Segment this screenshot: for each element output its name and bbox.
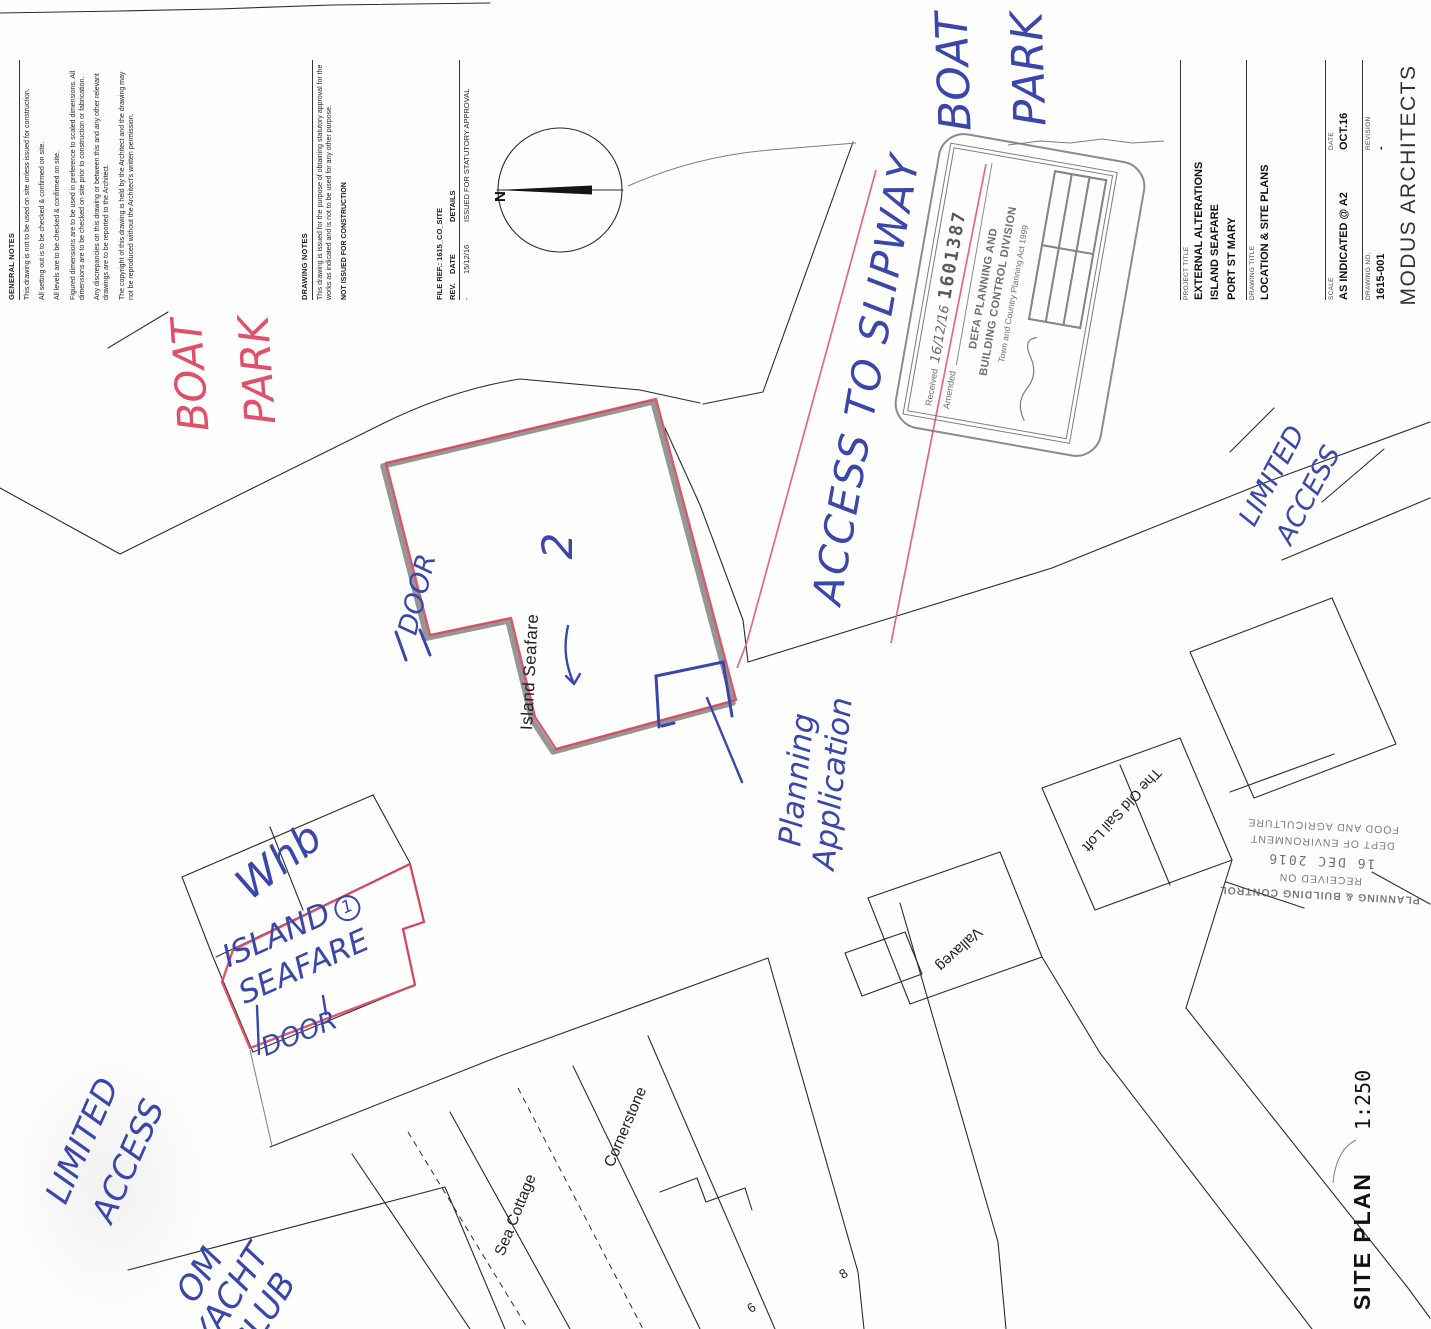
building-northeast-outline [1190, 598, 1396, 798]
annotation-line: BOAT [915, 0, 995, 145]
north-label: N [492, 176, 518, 202]
scale-value: AS INDICATED @ A2 [1337, 160, 1351, 300]
project-title-label: PROJECT TITLE [1183, 60, 1190, 300]
firm-name-text: MODUS ARCHITECTS [1397, 65, 1420, 306]
revision-label: REVISION [1365, 65, 1372, 150]
annotation-line: BOAT [151, 295, 229, 454]
scanned-site-plan-sheet: GENERAL NOTES This drawing is not to be … [0, 0, 1431, 1329]
defa-stamp-inner: Received 16/12/16 1601387 Amended DEFA P… [907, 147, 1113, 439]
date-cell: DATE OCT.16 [1328, 65, 1351, 150]
stamp-signature-squiggle [1012, 332, 1043, 423]
building-old-sail-loft-outline [1042, 738, 1232, 910]
north-letter: N [492, 191, 509, 202]
drawing-note-body: This drawing is issued for the purpose o… [316, 60, 334, 300]
porch-steps [660, 1178, 752, 1210]
drawing-no-cell: DRAWING NO. 1615-001 [1365, 160, 1388, 300]
drawing-notes-heading: DRAWING NOTES [300, 60, 313, 300]
annotation-boat-park-top: BOAT PARK [915, 0, 1090, 145]
drawing-title-label: DRAWING TITLE [1249, 60, 1256, 300]
building-vallaveg-outline [868, 852, 1042, 1004]
terrace-divider-5 [648, 1036, 775, 1329]
general-note: Figured dimensions are to be used in pre… [69, 60, 87, 300]
circled-number-1: 1 [331, 891, 365, 925]
date-label: DATE [1328, 65, 1335, 150]
boundary-east [665, 428, 748, 662]
rev-value: - [462, 274, 472, 300]
view-title: SITE PLAN 1:250 [1349, 1060, 1383, 1320]
lane-line-2 [900, 903, 1006, 1329]
general-note: Any discrepancies on this drawing or bet… [93, 60, 111, 300]
blue-rectangle-mark [656, 662, 732, 727]
view-title-text: SITE PLAN [1349, 1172, 1376, 1310]
date-value: OCT.16 [1337, 65, 1351, 150]
road-bottom-right-2 [1186, 1008, 1430, 1318]
terrace-strip-edge [352, 1154, 470, 1329]
rev-date-value: 15/12/16 [462, 222, 472, 274]
annotation-line: PARK [990, 0, 1070, 143]
scale-cell: SCALE AS INDICATED @ A2 [1328, 160, 1351, 300]
rev-col-label: REV. [448, 274, 458, 300]
date-col-label: DATE [448, 222, 458, 274]
general-note: This drawing is not to be used on site u… [23, 60, 32, 300]
slipway-line [628, 143, 856, 186]
file-ref: FILE REF.: 1615_CO_SITE [435, 60, 445, 300]
annotation-line: PARK [218, 291, 296, 450]
title-block: PROJECT TITLE EXTERNAL ALTERATIONS ISLAN… [1180, 60, 1430, 300]
stamp-grid [1028, 170, 1108, 329]
general-note: The copyright of this drawing is held by… [118, 60, 136, 300]
drawing-notes-block: DRAWING NOTES This drawing is issued for… [300, 60, 396, 300]
drawing-no-value: 1615-001 [1374, 160, 1388, 300]
revision-cell: REVISION - [1365, 65, 1388, 150]
general-notes-heading: GENERAL NOTES [7, 60, 20, 300]
revision-value: - [1374, 65, 1388, 150]
details-col-label: DETAILS [448, 190, 458, 222]
scale-date-section: SCALE AS INDICATED @ A2 DATE OCT.16 [1325, 60, 1363, 300]
scale-label: SCALE [1328, 160, 1335, 300]
view-scale-text: 1:250 [1351, 1070, 1375, 1130]
drawing-no-label: DRAWING NO. [1365, 160, 1372, 300]
boundary-to-stamp [703, 142, 853, 404]
annotation-text: 2 [533, 533, 582, 560]
scan-edge-line [0, 3, 490, 13]
general-note: All setting out is to be checked & confi… [38, 60, 47, 300]
general-note: All levels are to be checked & confirmed… [53, 60, 62, 300]
rev-details-value: ISSUED FOR STATUTORY APPROVAL [462, 89, 472, 222]
received-label: Received [923, 368, 939, 407]
received-date-stamp: PLANNING & BUILDING CONTROL RECEIVED ON … [1204, 787, 1431, 909]
blue-diagonal-mark [707, 698, 742, 782]
revision-table-header: REV. DATE DETAILS [448, 60, 460, 300]
annotation-boat-park-left: BOAT PARK [151, 289, 311, 454]
label-arrow [566, 626, 580, 684]
project-title-line: PORT ST MARY [1225, 60, 1239, 300]
road-connector-1 [1042, 957, 1100, 1053]
revision-table-row: - 15/12/16 ISSUED FOR STATUTORY APPROVAL [460, 60, 472, 300]
not-issued-warning: NOT ISSUED FOR CONSTRUCTION [340, 60, 349, 300]
project-title-line: ISLAND SEAFARE [1208, 60, 1222, 300]
architect-firm-name: MODUS ARCHITECTS [1397, 53, 1431, 317]
terrace-back-line [270, 958, 768, 1147]
general-notes-block: GENERAL NOTES This drawing is not to be … [7, 60, 195, 300]
building-vallaveg-annex [845, 932, 922, 996]
road-bottom-right-1 [1100, 1053, 1312, 1329]
project-title-section: PROJECT TITLE EXTERNAL ALTERATIONS ISLAN… [1180, 60, 1239, 300]
file-ref-block: FILE REF.: 1615_CO_SITE REV. DATE DETAIL… [435, 60, 481, 300]
drawing-title-value: LOCATION & SITE PLANS [1258, 60, 1272, 300]
annotation-unit-number-2: 2 [533, 521, 583, 571]
drawing-title-section: DRAWING TITLE LOCATION & SITE PLANS [1246, 60, 1272, 300]
project-title-line: EXTERNAL ALTERATIONS [1192, 60, 1206, 300]
